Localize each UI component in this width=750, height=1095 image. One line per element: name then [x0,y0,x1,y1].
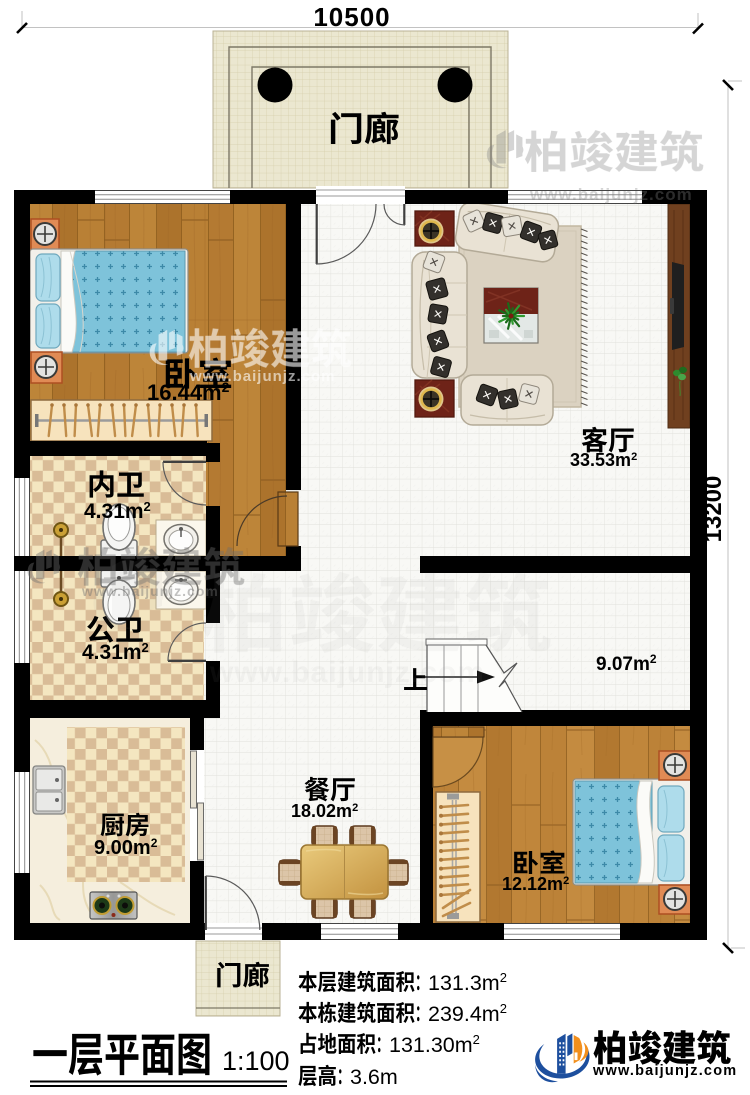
svg-text:12.12m2: 12.12m2 [502,874,569,894]
svg-text:18.02m2: 18.02m2 [291,801,358,821]
svg-text:131.30m2: 131.30m2 [389,1032,480,1057]
svg-text:4.31m2: 4.31m2 [82,640,149,664]
svg-text:33.53m2: 33.53m2 [570,450,637,470]
svg-text:www.baijunjz.com: www.baijunjz.com [189,368,335,385]
svg-text:3.6m: 3.6m [350,1065,398,1089]
svg-text:1:100: 1:100 [222,1046,290,1076]
svg-text:4.31m2: 4.31m2 [84,499,151,523]
svg-text:9.07m2: 9.07m2 [596,652,657,675]
svg-text:10500: 10500 [313,2,390,32]
svg-text:131.3m2: 131.3m2 [428,970,507,995]
svg-text:www.baijunjz.com: www.baijunjz.com [209,656,485,689]
svg-text:www.baijunjz.com: www.baijunjz.com [592,1063,737,1079]
svg-text:www.baijunjz.com: www.baijunjz.com [529,185,693,204]
svg-text:239.4m2: 239.4m2 [428,1001,507,1026]
svg-text:9.00m2: 9.00m2 [94,836,158,859]
